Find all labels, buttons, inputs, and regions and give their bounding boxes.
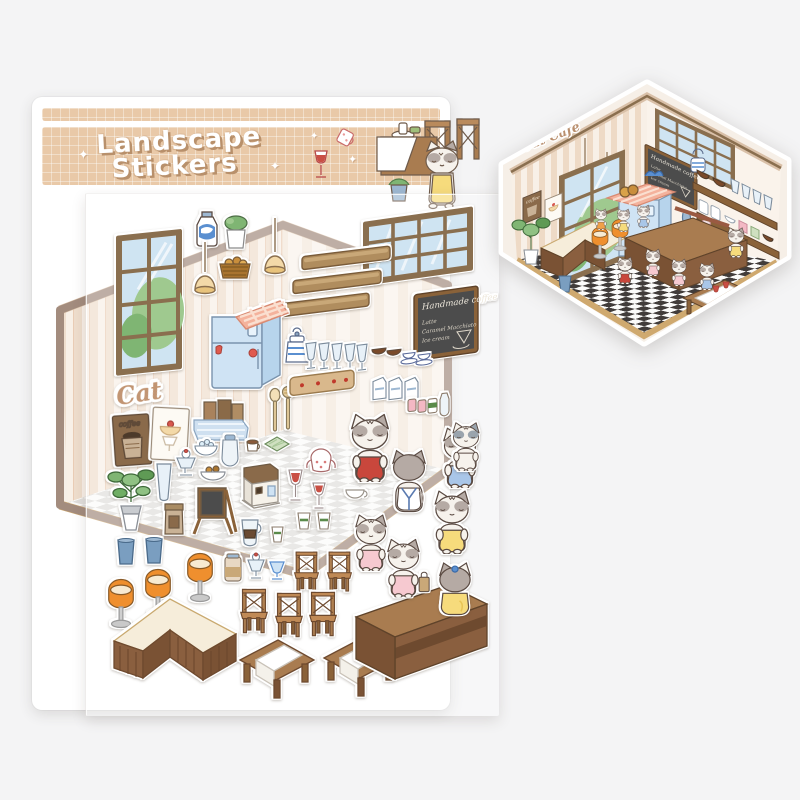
sticker-teapot — [305, 450, 337, 476]
sticker-trash-bin — [143, 537, 165, 565]
sticker-coffee-bag — [162, 500, 186, 538]
sticker-parfait — [245, 552, 267, 582]
sticker-cat-gray-kitten — [446, 421, 486, 471]
product-photo: Landscape Stickers ✦ ✦ ✦ ✦ — [0, 0, 800, 800]
sticker-dining-chair — [308, 591, 338, 638]
sticker-menu-easel — [192, 484, 238, 538]
sticker-coat-rack — [288, 370, 358, 410]
sticker-potted-plant — [221, 214, 251, 250]
sticker-blue-goblet — [268, 560, 286, 582]
sticker-dining-chair — [239, 588, 269, 635]
sticker-cat-blue-apron-back — [387, 446, 431, 514]
sticker-milkshake-jar — [222, 553, 244, 583]
sticker-hanging-lamp — [262, 218, 288, 280]
sticker-dining-chair — [293, 551, 320, 593]
sticker-hanging-lamp — [192, 242, 218, 300]
sticker-wine-glass — [287, 468, 304, 504]
sticker-paper-cup — [296, 510, 312, 531]
wine-glass-icon — [312, 149, 330, 181]
watermelon-magnet-icon — [216, 346, 222, 355]
sticker-spoon — [268, 388, 282, 434]
sticker-cocoa-cup — [245, 436, 261, 454]
sticker-dining-chair — [326, 551, 353, 593]
sticker-potted-tree — [106, 468, 156, 534]
sparkle-icon: ✦ — [270, 159, 280, 173]
sticker-cafe-table — [236, 636, 318, 700]
sticker-wine-glass — [311, 481, 327, 511]
sticker-snack-bowl — [199, 463, 227, 485]
chair-icon — [457, 119, 479, 159]
sticker-coffee-machine — [240, 462, 282, 514]
sticker-trash-bin — [115, 538, 137, 566]
sticker-white-cup — [344, 486, 366, 504]
sticker-cat-yellow-apron — [429, 488, 475, 554]
product-title: Landscape Stickers — [96, 125, 263, 184]
sticker-green-cloth — [263, 434, 291, 454]
tomato-magnet-icon — [249, 349, 257, 357]
sticker-coffee-poster: coffee — [111, 413, 153, 468]
sparkle-icon: ✦ — [310, 131, 318, 142]
assembled-scene-sticker: Cat Cafe coffee — [497, 80, 793, 348]
sticker-tall-glass — [154, 462, 174, 502]
sticker-tall-window — [114, 228, 184, 382]
sticker-l-shaped-counter — [110, 594, 242, 686]
sticker-ice-bowl — [193, 438, 219, 460]
coffee-poster-label: coffee — [119, 419, 141, 428]
sticker-sugar-jar — [219, 434, 241, 462]
sticker-paper-cup — [270, 524, 285, 544]
sticker-dining-chair — [274, 592, 304, 639]
sticker-drip-pot — [236, 516, 264, 546]
sparkle-icon: ✦ — [78, 147, 89, 163]
sticker-bread-basket — [218, 254, 252, 280]
sticker-cat-pink-dress-with-bag — [382, 534, 432, 602]
sticker-cat-yellow-back — [432, 560, 478, 616]
sticker-paper-cup — [316, 510, 332, 531]
paper-bag-icon — [419, 572, 429, 591]
sticker-shelf-plank — [279, 296, 371, 322]
title-line-2: Stickers — [97, 150, 263, 184]
